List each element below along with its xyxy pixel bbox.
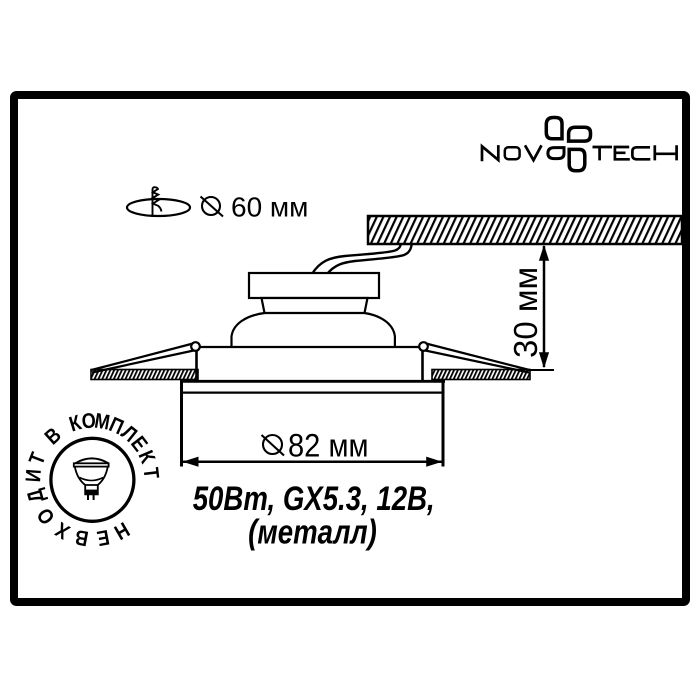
svg-text:82 мм: 82 мм — [288, 428, 368, 464]
svg-text:И: И — [22, 468, 47, 483]
svg-text:(металл): (металл) — [248, 513, 377, 552]
svg-text:30 мм: 30 мм — [507, 267, 544, 358]
svg-text:60 мм: 60 мм — [231, 192, 308, 223]
